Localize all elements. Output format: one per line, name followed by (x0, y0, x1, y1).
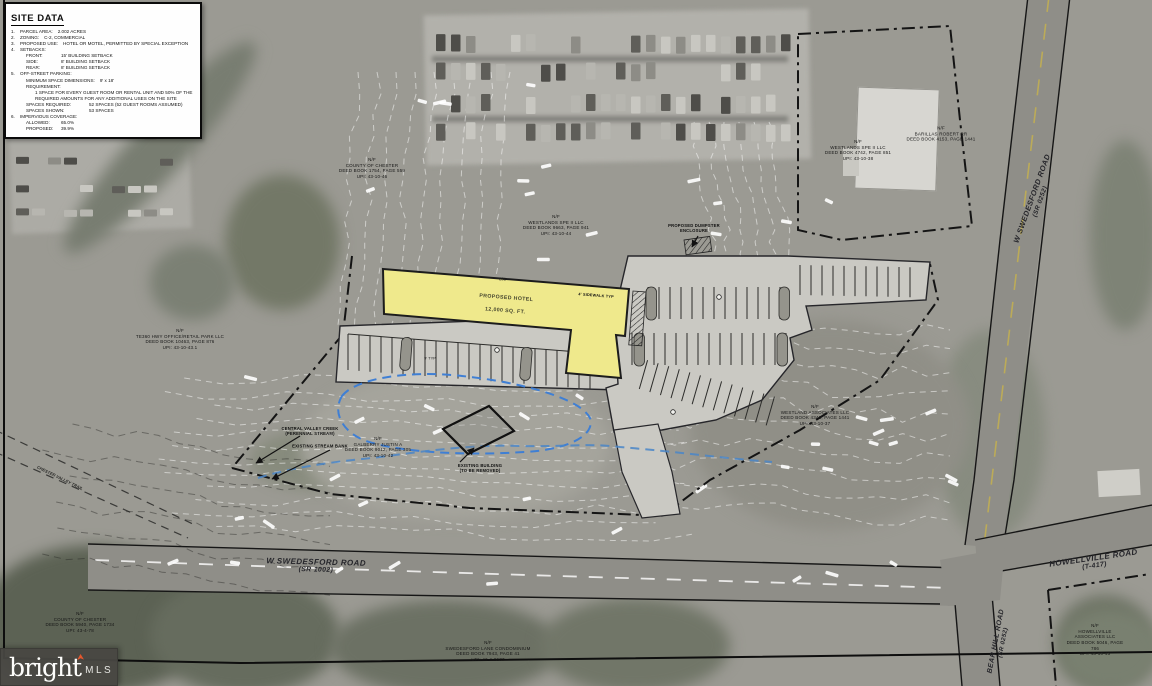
road-label-swedesford-sr1002: W SWEDESFORD ROAD (SR 1002) (266, 556, 366, 576)
existing-building-outline (443, 406, 514, 454)
dumpster-pad-hatch (684, 236, 712, 254)
brightmls-suffix-text: MLS (85, 665, 113, 676)
site-plan-page: PROPOSED HOTEL 12,000 SQ. FT. 250' 9' TY… (0, 0, 1152, 686)
brightmls-logo-text: bright (9, 655, 81, 680)
site-data-line: 1 SPACE FOR EVERY GUEST ROOM OR RENTAL U… (11, 90, 195, 102)
watermark-brightmls: bright MLS (0, 648, 118, 686)
site-data-title: SITE DATA (11, 13, 64, 26)
site-data-line: PROPOSED:39.9% (11, 126, 195, 132)
site-data-panel: SITE DATA 1.PARCEL AREA:2.002 ACRES 2.ZO… (4, 2, 202, 139)
trail-lines (0, 430, 195, 538)
